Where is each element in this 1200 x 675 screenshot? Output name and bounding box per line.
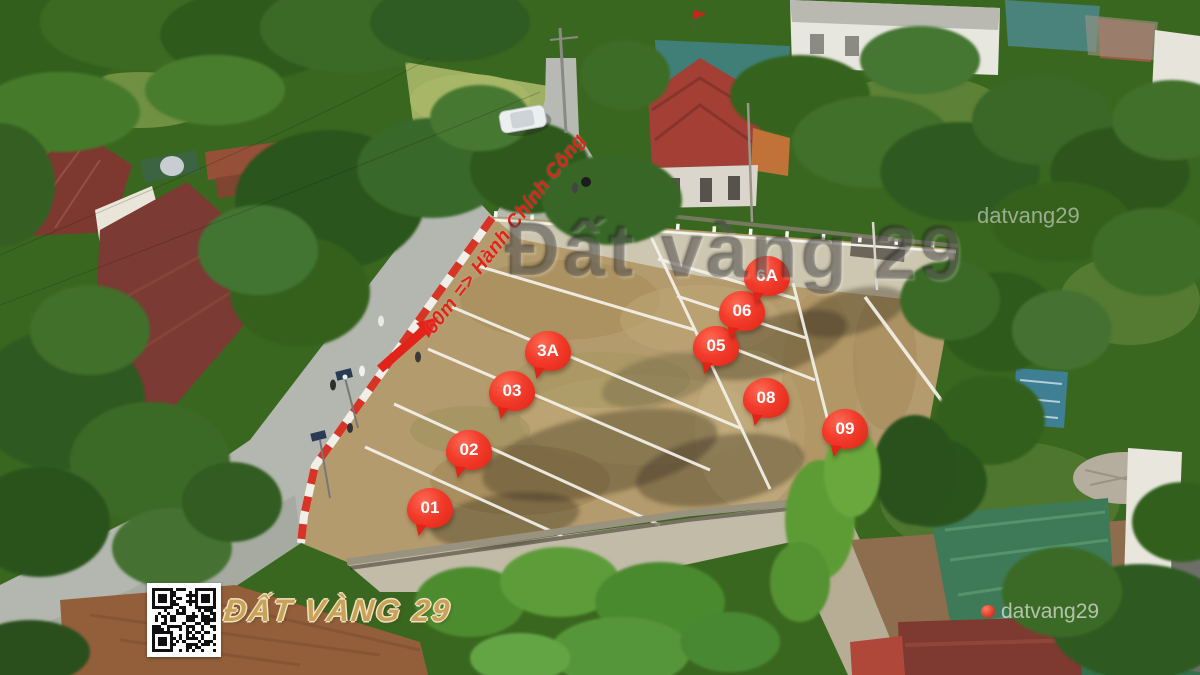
top-right-watermark: datvang29 [977,203,1080,229]
plot-badge-09: 09 [822,409,868,449]
plot-badge-3A: 3A [525,331,571,371]
plot-badge-03: 03 [489,371,535,411]
plot-badge-08: 08 [743,378,789,418]
plot-badge-01: 01 [407,488,453,528]
center-watermark: Đất vàng 29 [505,206,965,298]
scene-graphics [0,0,1200,675]
aerial-photo: 60m => Hành Chính Công Đất vàng 29 datva… [0,0,1200,675]
bottom-right-watermark: datvang29 [1001,600,1099,624]
red-dot [981,605,995,618]
brand-logo-text: ĐẤT VÀNG 29 [222,593,453,629]
qr-code [147,583,221,657]
plot-badge-02: 02 [446,430,492,470]
